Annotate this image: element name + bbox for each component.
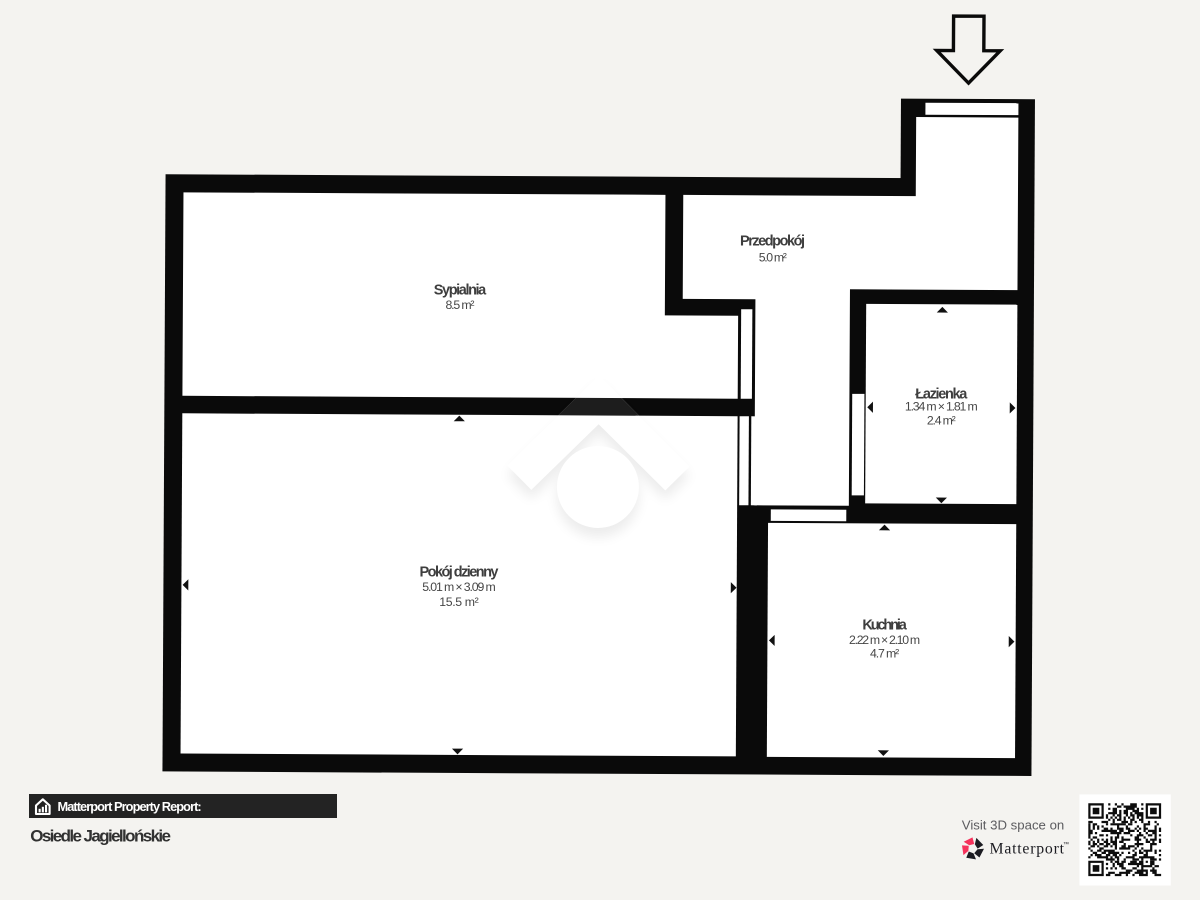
svg-text:2.4 m²: 2.4 m² <box>927 414 956 428</box>
svg-text:5.0 m²: 5.0 m² <box>759 251 787 265</box>
svg-text:Matterport: Matterport <box>990 841 1065 858</box>
svg-text:15.5 m²: 15.5 m² <box>439 595 479 609</box>
svg-text:1.34 m × 1.81 m: 1.34 m × 1.81 m <box>905 400 978 414</box>
svg-text:8.5 m²: 8.5 m² <box>446 298 475 312</box>
svg-text:Kuchnia: Kuchnia <box>862 617 907 633</box>
svg-text:2.22 m × 2.10 m: 2.22 m × 2.10 m <box>849 633 920 647</box>
svg-text:Sypialnia: Sypialnia <box>434 282 487 298</box>
svg-text:4.7 m²: 4.7 m² <box>870 646 899 660</box>
svg-text:Visit 3D space on: Visit 3D space on <box>962 818 1065 833</box>
svg-text:Osiedle Jagiellońskie: Osiedle Jagiellońskie <box>30 827 171 846</box>
svg-text:Matterport Property Report:: Matterport Property Report: <box>58 799 202 814</box>
svg-text:Pokój dzienny: Pokój dzienny <box>420 565 499 581</box>
svg-text:5.01 m × 3.09 m: 5.01 m × 3.09 m <box>422 580 496 594</box>
svg-text:Przedpokój: Przedpokój <box>740 233 805 249</box>
svg-text:™: ™ <box>1063 841 1069 848</box>
